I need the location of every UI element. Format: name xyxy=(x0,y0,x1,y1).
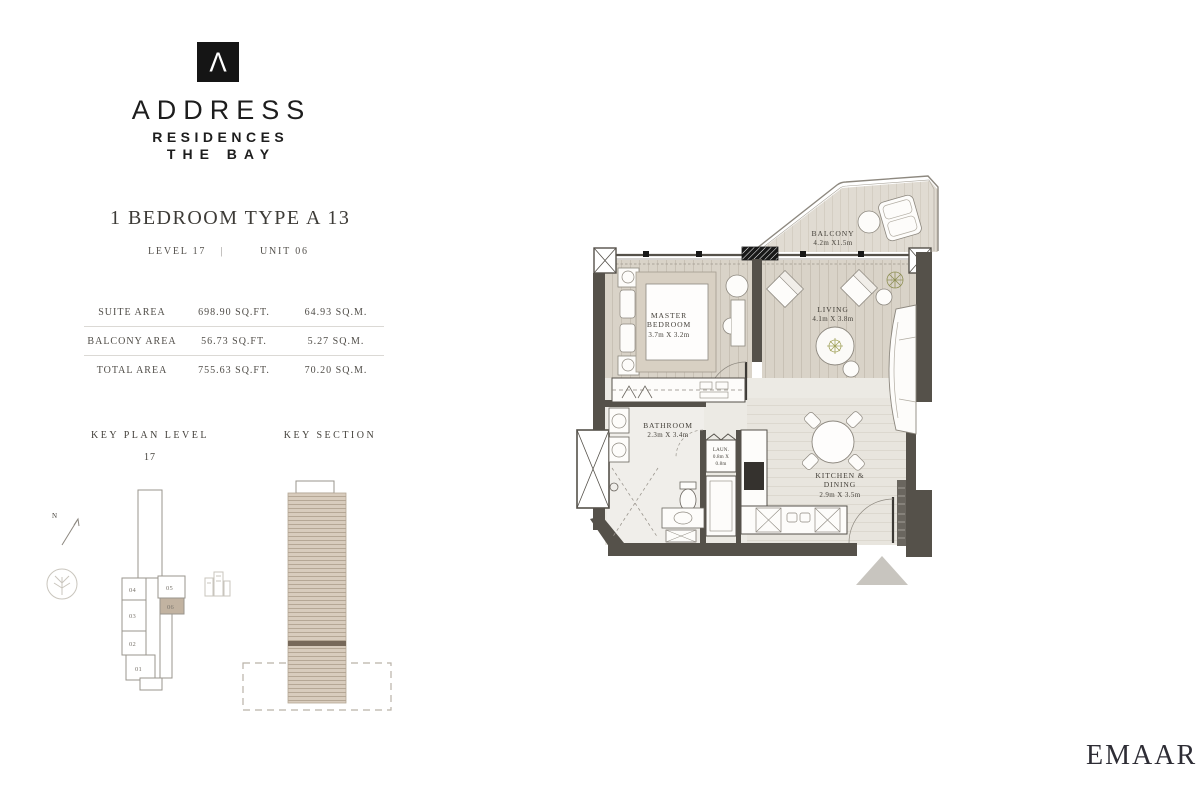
brand-name: ADDRESS xyxy=(118,95,318,126)
laundry-closet: LAUN. 0.8m X 0.8m xyxy=(706,434,736,536)
area-label: TOTAL AREA xyxy=(84,365,180,376)
bedroom-label-2: BEDROOM xyxy=(647,320,691,329)
area-row-suite: SUITE AREA 698.90 SQ.FT. 64.93 SQ.M. xyxy=(84,298,384,326)
wardrobe xyxy=(612,378,745,402)
balcony-table xyxy=(858,211,880,233)
key-plan-unit-label: 05 xyxy=(166,585,173,592)
vanity xyxy=(662,508,704,528)
area-sqm: 64.93 SQ.M. xyxy=(288,307,384,318)
key-plan-unit-label: 04 xyxy=(129,587,137,594)
key-section-crown xyxy=(296,481,334,493)
area-row-total: TOTAL AREA 755.63 SQ.FT. 70.20 SQ.M. xyxy=(84,355,384,384)
utility-shaft xyxy=(577,430,609,508)
area-sqft: 755.63 SQ.FT. xyxy=(180,365,288,376)
area-table: SUITE AREA 698.90 SQ.FT. 64.93 SQ.M. BAL… xyxy=(84,298,384,384)
key-plan-unit-label: 03 xyxy=(129,613,136,620)
laundry-dims-1: 0.8m X xyxy=(713,455,729,460)
sofa xyxy=(889,305,916,434)
pillow xyxy=(620,290,635,318)
laundry-label: LAUN. xyxy=(713,448,729,453)
floorplan-brochure-page: { "brand": { "logo_mark": "Λ", "name": "… xyxy=(0,0,1199,800)
area-sqm: 70.20 SQ.M. xyxy=(288,365,384,376)
page-title: 1 BEDROOM TYPE A 13 xyxy=(110,207,350,230)
key-section-title: KEY SECTION xyxy=(266,430,394,441)
key-plan-unit-label: 02 xyxy=(129,641,136,648)
logo-mark: Λ xyxy=(209,48,226,75)
oven xyxy=(744,462,764,490)
address-logo-icon: Λ xyxy=(197,42,239,82)
unit-label: UNIT 06 xyxy=(260,246,309,257)
ottoman xyxy=(843,361,859,377)
kitchen-counter xyxy=(741,506,847,534)
area-sqm: 5.27 SQ.M. xyxy=(288,336,384,347)
key-plan-section-graphic: N 04 05 06 03 02 01 xyxy=(30,470,410,720)
brand-line2: THE BAY xyxy=(118,146,318,162)
living-label: LIVING xyxy=(817,305,849,314)
area-label: BALCONY AREA xyxy=(84,336,180,347)
area-sqft: 56.73 SQ.FT. xyxy=(180,336,288,347)
key-plan-title: KEY PLAN LEVEL xyxy=(84,430,216,441)
balcony: BALCONY 4.2m X1.5m xyxy=(752,176,938,252)
level-label: LEVEL 17 xyxy=(148,246,206,257)
entry-closet xyxy=(897,480,906,546)
brand-block: Λ ADDRESS RESIDENCES THE BAY xyxy=(118,42,318,162)
key-section-level-marker xyxy=(288,641,346,646)
desk xyxy=(731,300,745,346)
north-label: N xyxy=(52,512,57,520)
bathroom-dims: 2.3m X 3.4m xyxy=(647,431,688,439)
key-plan-unit-label: 06 xyxy=(167,604,175,611)
side-table xyxy=(876,289,892,305)
entry-arrow-icon xyxy=(856,556,908,585)
area-row-balcony: BALCONY AREA 56.73 SQ.FT. 5.27 SQ.M. xyxy=(84,326,384,355)
key-section-diagram xyxy=(243,481,391,710)
key-plan-level: 17 xyxy=(84,452,216,463)
bathroom-label: BATHROOM xyxy=(643,421,693,430)
balcony-label: BALCONY xyxy=(811,229,854,238)
living-dims: 4.1m X 3.8m xyxy=(812,315,853,323)
shear-wall-hatch xyxy=(742,247,778,260)
level-unit-divider: | xyxy=(220,246,224,257)
developer-logo: EMAAR xyxy=(1086,740,1197,772)
north-arrow-icon xyxy=(62,519,79,545)
brand-line1: RESIDENCES xyxy=(118,129,318,145)
dining-table xyxy=(812,421,854,463)
balcony-dims: 4.2m X1.5m xyxy=(813,239,852,247)
pillow xyxy=(620,324,635,352)
area-label: SUITE AREA xyxy=(84,307,180,318)
kitchen-label-2: DINING xyxy=(824,480,856,489)
key-plan-unit-label: 01 xyxy=(135,666,142,673)
kitchen-label-1: KITCHEN & xyxy=(815,471,864,480)
bedroom-dims: 3.7m X 3.2m xyxy=(648,331,689,339)
level-unit-row: LEVEL 17|UNIT 06 xyxy=(148,246,323,257)
city-icon xyxy=(205,572,230,596)
kitchen-dims: 2.9m X 3.5m xyxy=(819,491,860,499)
laundry-dims-2: 0.8m xyxy=(716,462,727,467)
round-chair xyxy=(726,275,748,297)
key-section-tower xyxy=(288,493,346,703)
storage-cupboard xyxy=(706,476,736,536)
area-sqft: 698.90 SQ.FT. xyxy=(180,307,288,318)
plant-icon xyxy=(887,272,903,288)
floor-plan: BALCONY 4.2m X1.5m xyxy=(555,160,955,590)
tree-icon xyxy=(47,569,77,599)
bedroom-label-1: MASTER xyxy=(651,311,687,320)
